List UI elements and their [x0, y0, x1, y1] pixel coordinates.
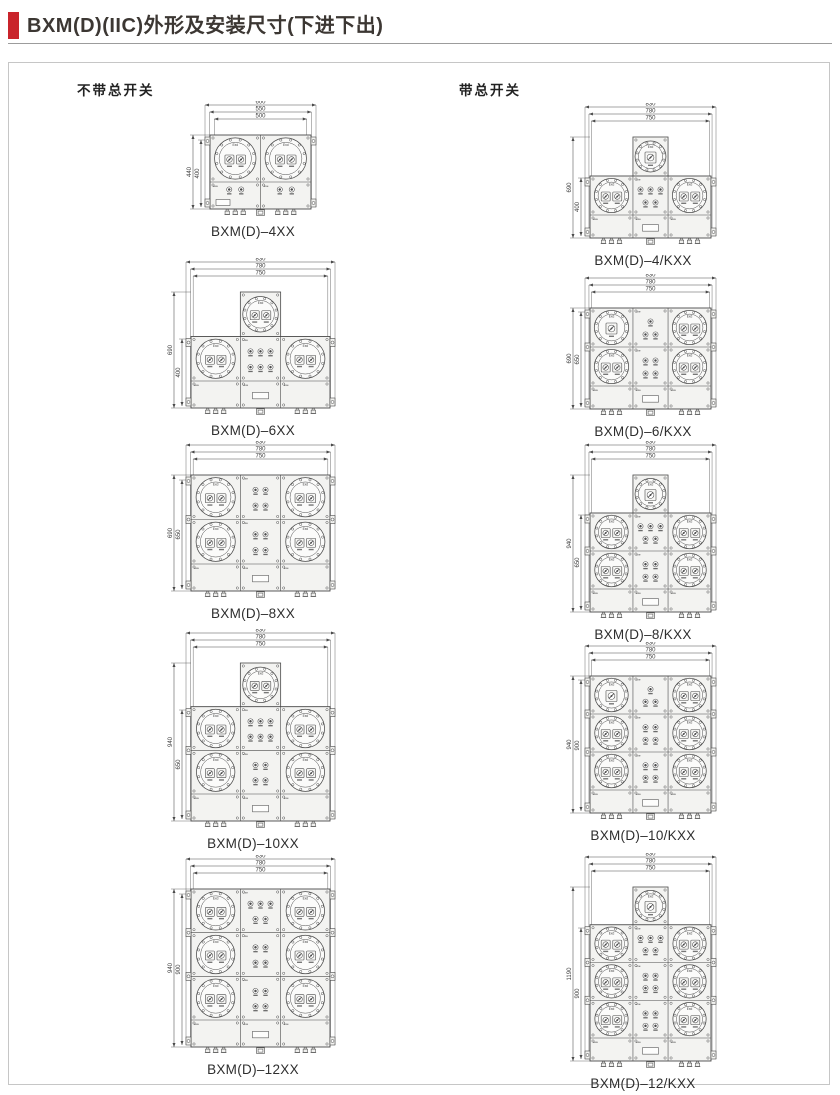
- svg-text:Exd: Exd: [213, 984, 219, 988]
- svg-text:Exd: Exd: [687, 759, 693, 763]
- figure-bxmd-6kxx: 830780750690650ExdExdExeExdExdExeExeExeE…: [563, 274, 723, 439]
- svg-text:Exd: Exd: [213, 483, 219, 487]
- svg-text:830: 830: [255, 855, 266, 859]
- cable-glands: [601, 238, 701, 244]
- figure-caption: BXM(D)–4/KXX: [594, 253, 691, 268]
- figure-list-right: 830780750690400ExdExdExdExeExeExeExeBXM(…: [451, 99, 835, 1091]
- svg-text:Exd: Exd: [213, 940, 219, 944]
- column-with-main-switch: 带总开关 830780750690400ExdExdExdExeExeExeEx…: [451, 79, 835, 1091]
- bxmd-4kxx-drawing: 830780750690400ExdExdExdExeExeExeExe: [563, 103, 723, 252]
- svg-text:780: 780: [645, 858, 656, 864]
- svg-text:690: 690: [567, 182, 573, 193]
- svg-text:750: 750: [645, 286, 656, 292]
- svg-text:830: 830: [645, 642, 656, 646]
- svg-text:690: 690: [168, 527, 174, 538]
- svg-text:Exd: Exd: [648, 483, 654, 487]
- bxmd-6xx-drawing: 830780750690400ExdExdExdExeExeExeExe: [164, 258, 342, 422]
- svg-text:Exd: Exd: [303, 344, 309, 348]
- side-dimensions: 690650: [168, 475, 193, 591]
- svg-text:500: 500: [255, 113, 266, 119]
- figure-caption: BXM(D)–8/KXX: [594, 627, 691, 642]
- svg-text:830: 830: [645, 441, 656, 445]
- svg-text:780: 780: [645, 279, 656, 285]
- svg-text:Exd: Exd: [213, 527, 219, 531]
- svg-text:750: 750: [255, 270, 266, 276]
- figure-caption: BXM(D)–12/KXX: [590, 1076, 695, 1091]
- svg-text:Exd: Exd: [213, 896, 219, 900]
- svg-text:Exd: Exd: [303, 984, 309, 988]
- page-title: BXM(D)(IIC)外形及安装尺寸(下进下出): [27, 9, 383, 38]
- svg-text:Exd: Exd: [303, 527, 309, 531]
- svg-text:780: 780: [645, 647, 656, 653]
- svg-text:Exd: Exd: [687, 969, 693, 973]
- cable-glands: [205, 591, 316, 597]
- figure-bxmd-12kxx: 8307807501190900ExdExdExdExeExdExdExeExd…: [563, 853, 723, 1091]
- bxmd-12kxx-drawing: 8307807501190900ExdExdExdExeExdExdExeExd…: [563, 853, 723, 1075]
- svg-text:Exd: Exd: [687, 354, 693, 358]
- svg-text:Exd: Exd: [609, 931, 615, 935]
- svg-text:Exd: Exd: [609, 183, 615, 187]
- svg-text:Exd: Exd: [609, 1007, 615, 1011]
- figure-bxmd-8xx: 830780750690650ExdExdExeExdExdExeExeExeE…: [164, 441, 342, 621]
- cable-glands: [224, 209, 296, 215]
- cable-glands: [601, 813, 701, 819]
- bxmd-4xx-drawing: 600550500440400ExdExdExeExe: [183, 101, 323, 223]
- svg-text:940: 940: [567, 739, 573, 750]
- column-header-right: 带总开关: [459, 79, 835, 99]
- svg-text:400: 400: [195, 168, 201, 179]
- svg-text:Exd: Exd: [687, 183, 693, 187]
- svg-text:Exd: Exd: [303, 714, 309, 718]
- svg-text:Exd: Exd: [687, 315, 693, 319]
- svg-text:Exd: Exd: [648, 894, 654, 898]
- svg-text:Exd: Exd: [303, 758, 309, 762]
- svg-text:830: 830: [645, 103, 656, 107]
- figure-list-left: 600550500440400ExdExdExeExeBXM(D)–4XX830…: [63, 99, 443, 1077]
- cable-glands: [205, 821, 316, 827]
- figure-caption: BXM(D)–6/KXX: [594, 424, 691, 439]
- svg-text:Exd: Exd: [303, 940, 309, 944]
- side-dimensions: 1190900: [567, 887, 592, 1061]
- title-accent-bar: [8, 12, 19, 39]
- column-header-left: 不带总开关: [77, 79, 443, 99]
- bxmd-8xx-drawing: 830780750690650ExdExdExeExdExdExeExeExeE…: [164, 441, 342, 605]
- svg-text:Exd: Exd: [609, 315, 615, 319]
- svg-text:400: 400: [575, 201, 581, 212]
- side-dimensions: 940650: [168, 663, 193, 821]
- svg-text:830: 830: [255, 629, 266, 633]
- side-dimensions: 940650: [567, 475, 592, 612]
- side-dimensions: 690400: [567, 137, 592, 238]
- figure-caption: BXM(D)–10XX: [207, 836, 299, 851]
- svg-text:Exd: Exd: [609, 969, 615, 973]
- svg-text:Exd: Exd: [687, 721, 693, 725]
- side-dimensions: 940900: [168, 889, 193, 1047]
- svg-text:Exd: Exd: [609, 683, 615, 687]
- svg-text:780: 780: [255, 634, 266, 640]
- svg-text:650: 650: [575, 557, 581, 568]
- svg-text:750: 750: [645, 453, 656, 459]
- svg-text:Exd: Exd: [283, 143, 289, 147]
- svg-text:Exd: Exd: [609, 354, 615, 358]
- svg-text:900: 900: [575, 988, 581, 999]
- svg-text:750: 750: [645, 865, 656, 871]
- figure-bxmd-4kxx: 830780750690400ExdExdExdExeExeExeExeBXM(…: [563, 103, 723, 268]
- svg-text:Exd: Exd: [687, 1007, 693, 1011]
- figure-bxmd-6xx: 830780750690400ExdExdExdExeExeExeExeBXM(…: [164, 258, 342, 438]
- svg-text:830: 830: [645, 853, 656, 857]
- bxmd-10kxx-drawing: 830780750940900ExdExdExeExdExdExeExdExdE…: [563, 642, 723, 827]
- side-dimensions: 690650: [567, 308, 592, 409]
- svg-text:750: 750: [645, 654, 656, 660]
- figure-caption: BXM(D)–6XX: [211, 423, 295, 438]
- svg-text:Exd: Exd: [687, 558, 693, 562]
- svg-text:830: 830: [645, 274, 656, 278]
- svg-text:940: 940: [567, 538, 573, 549]
- bxmd-6kxx-drawing: 830780750690650ExdExdExeExdExdExeExeExeE…: [563, 274, 723, 423]
- cable-glands: [205, 1047, 316, 1053]
- svg-text:600: 600: [255, 101, 266, 105]
- side-dimensions: 690400: [168, 292, 193, 408]
- bxmd-10xx-drawing: 830780750940650ExdExdExdExeExdExdExeExeE…: [164, 629, 342, 835]
- svg-text:400: 400: [176, 367, 182, 378]
- svg-text:Exd: Exd: [687, 520, 693, 524]
- bxmd-8kxx-drawing: 830780750940650ExdExdExdExeExdExdExeExeE…: [563, 441, 723, 626]
- figure-caption: BXM(D)–10/KXX: [590, 828, 695, 843]
- svg-text:Exd: Exd: [609, 520, 615, 524]
- svg-text:550: 550: [255, 106, 266, 112]
- svg-text:Exd: Exd: [258, 672, 264, 676]
- cable-glands: [601, 409, 701, 415]
- svg-text:750: 750: [645, 115, 656, 121]
- svg-text:Exd: Exd: [687, 683, 693, 687]
- figure-caption: BXM(D)–8XX: [211, 606, 295, 621]
- figure-bxmd-4xx: 600550500440400ExdExdExeExeBXM(D)–4XX: [183, 101, 323, 239]
- svg-text:750: 750: [255, 641, 266, 647]
- svg-text:650: 650: [575, 354, 581, 365]
- svg-text:Exd: Exd: [258, 301, 264, 305]
- svg-text:Exd: Exd: [687, 931, 693, 935]
- figure-caption: BXM(D)–12XX: [207, 1062, 299, 1077]
- svg-text:780: 780: [255, 446, 266, 452]
- side-dimensions: 440400: [187, 135, 212, 209]
- header-rule: [8, 43, 832, 44]
- cable-glands: [601, 612, 701, 618]
- svg-text:Exd: Exd: [609, 558, 615, 562]
- content-frame: 不带总开关 600550500440400ExdExdExeExeBXM(D)–…: [8, 62, 830, 1085]
- svg-text:830: 830: [255, 258, 266, 262]
- svg-text:900: 900: [575, 740, 581, 751]
- svg-text:Exd: Exd: [303, 896, 309, 900]
- svg-text:Exd: Exd: [303, 483, 309, 487]
- figure-bxmd-12xx: 830780750940900ExdExdExeExdExdExeExdExdE…: [164, 855, 342, 1077]
- svg-text:690: 690: [168, 344, 174, 355]
- cable-glands: [205, 408, 316, 414]
- figure-bxmd-10kxx: 830780750940900ExdExdExeExdExdExeExdExdE…: [563, 642, 723, 843]
- side-dimensions: 940900: [567, 676, 592, 813]
- svg-text:650: 650: [176, 759, 182, 770]
- svg-text:750: 750: [255, 867, 266, 873]
- svg-text:440: 440: [187, 166, 193, 177]
- svg-text:Exd: Exd: [213, 344, 219, 348]
- svg-text:830: 830: [255, 441, 266, 445]
- cable-glands: [601, 1061, 701, 1067]
- svg-text:1190: 1190: [567, 967, 573, 981]
- svg-text:650: 650: [176, 529, 182, 540]
- column-without-main-switch: 不带总开关 600550500440400ExdExdExeExeBXM(D)–…: [63, 79, 443, 1077]
- svg-text:780: 780: [255, 860, 266, 866]
- bxmd-12xx-drawing: 830780750940900ExdExdExeExdExdExeExdExdE…: [164, 855, 342, 1061]
- svg-text:Exd: Exd: [648, 145, 654, 149]
- svg-text:Exd: Exd: [213, 714, 219, 718]
- svg-text:Exd: Exd: [213, 758, 219, 762]
- figure-caption: BXM(D)–4XX: [211, 224, 295, 239]
- svg-text:900: 900: [176, 964, 182, 975]
- svg-text:940: 940: [168, 962, 174, 973]
- svg-text:Exd: Exd: [609, 721, 615, 725]
- svg-text:Exd: Exd: [609, 759, 615, 763]
- figure-bxmd-10xx: 830780750940650ExdExdExdExeExdExdExeExeE…: [164, 629, 342, 851]
- svg-text:780: 780: [255, 263, 266, 269]
- svg-text:690: 690: [567, 353, 573, 364]
- svg-text:Exd: Exd: [233, 143, 239, 147]
- svg-text:940: 940: [168, 736, 174, 747]
- svg-text:780: 780: [645, 108, 656, 114]
- svg-text:780: 780: [645, 446, 656, 452]
- figure-bxmd-8kxx: 830780750940650ExdExdExdExeExdExdExeExeE…: [563, 441, 723, 642]
- svg-text:750: 750: [255, 453, 266, 459]
